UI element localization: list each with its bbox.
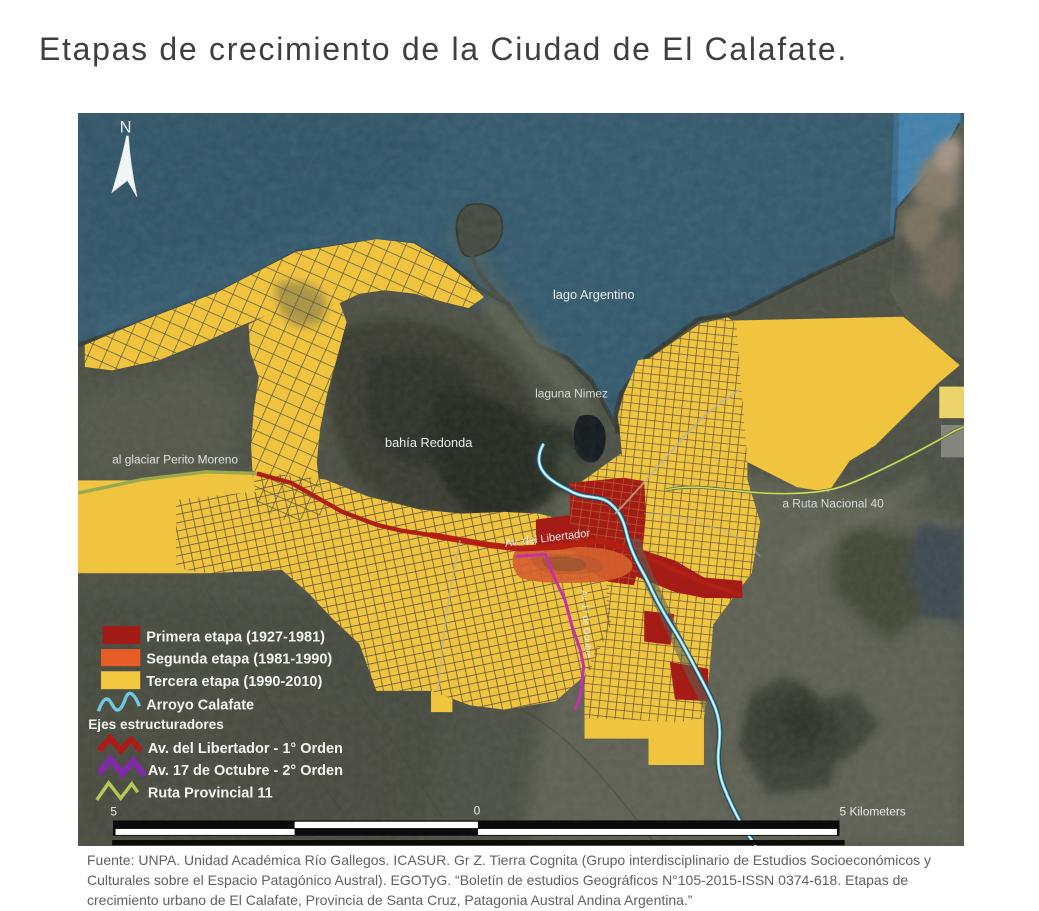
- svg-text:Tercera etapa (1990-2010): Tercera etapa (1990-2010): [146, 674, 322, 690]
- svg-text:Segunda etapa (1981-1990): Segunda etapa (1981-1990): [146, 652, 332, 668]
- svg-text:al glaciar Perito Moreno: al glaciar Perito Moreno: [112, 452, 238, 466]
- svg-text:Primera etapa (1927-1981): Primera etapa (1927-1981): [146, 629, 325, 645]
- svg-text:5: 5: [110, 804, 117, 818]
- svg-text:laguna Nimez: laguna Nimez: [535, 387, 608, 401]
- svg-text:5 Kilometers: 5 Kilometers: [839, 804, 905, 818]
- svg-text:0: 0: [474, 803, 481, 817]
- svg-text:Ejes estructuradores: Ejes estructuradores: [88, 717, 224, 732]
- svg-text:N: N: [120, 119, 132, 137]
- svg-text:Arroyo Calafate: Arroyo Calafate: [146, 698, 254, 714]
- svg-text:Av. 17 de Octubre - 2° Orden: Av. 17 de Octubre - 2° Orden: [148, 763, 343, 779]
- svg-text:bahía Redonda: bahía Redonda: [385, 435, 473, 450]
- svg-text:Ruta Provincial 11: Ruta Provincial 11: [148, 785, 273, 801]
- svg-text:Av. del Libertador - 1° Orden: Av. del Libertador - 1° Orden: [148, 741, 343, 757]
- svg-text:a Ruta Nacional 40: a Ruta Nacional 40: [782, 497, 884, 511]
- svg-text:lago Argentino: lago Argentino: [553, 287, 635, 302]
